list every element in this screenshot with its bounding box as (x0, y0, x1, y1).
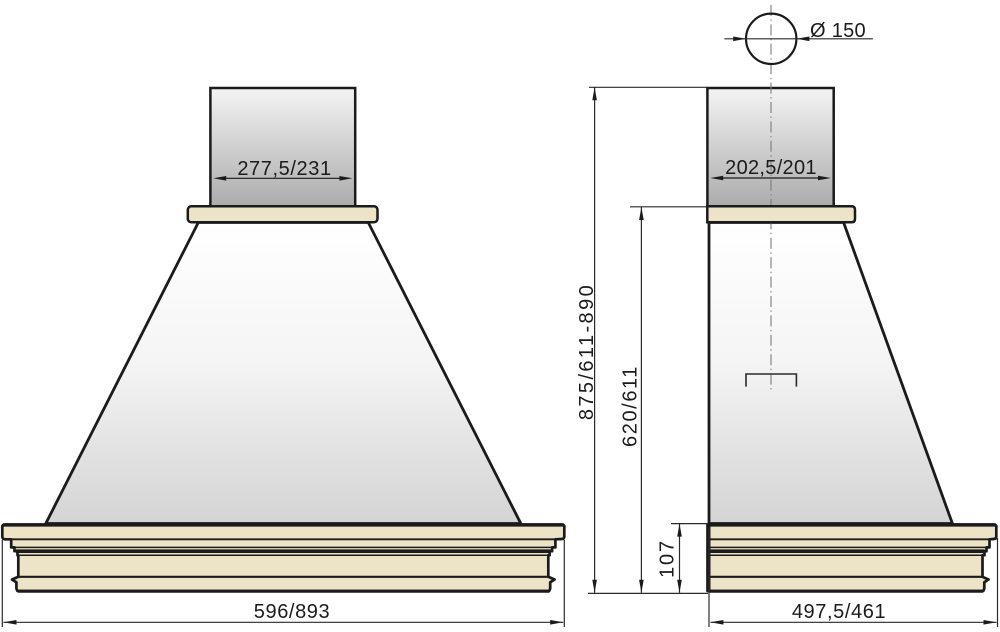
svg-text:875/611-890: 875/611-890 (576, 283, 598, 420)
svg-text:277,5/231: 277,5/231 (237, 158, 331, 180)
svg-text:202,5/201: 202,5/201 (725, 157, 817, 179)
svg-text:107: 107 (656, 539, 678, 578)
svg-text:497,5/461: 497,5/461 (792, 601, 886, 623)
svg-text:596/893: 596/893 (254, 601, 331, 623)
svg-text:620/611: 620/611 (619, 365, 641, 447)
svg-text:Ø 150: Ø 150 (810, 20, 866, 42)
